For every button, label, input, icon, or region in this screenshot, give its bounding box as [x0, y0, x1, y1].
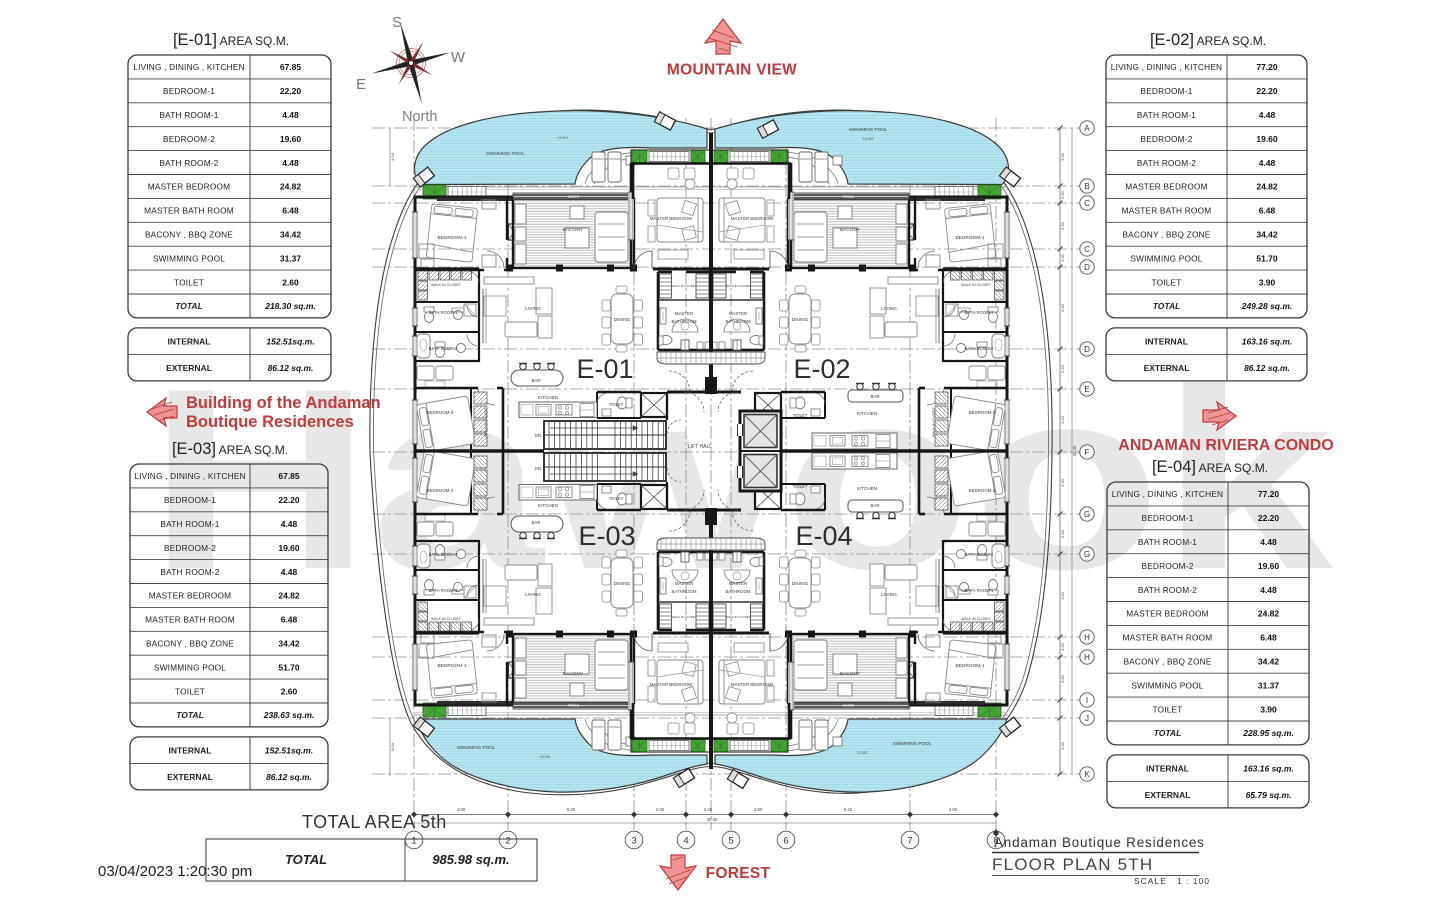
svg-text:BEDROOM-2: BEDROOM-2	[1141, 561, 1193, 571]
svg-text:4.48: 4.48	[281, 519, 298, 529]
svg-text:3.30: 3.30	[1060, 221, 1065, 230]
svg-text:E-03: E-03	[578, 521, 635, 551]
svg-text:985.98 sq.m.: 985.98 sq.m.	[432, 852, 509, 867]
svg-text:ANDAMAN RIVIERA CONDO: ANDAMAN RIVIERA CONDO	[1118, 437, 1333, 454]
svg-text:TOTAL AREA 5th: TOTAL AREA 5th	[302, 812, 447, 832]
svg-text:INTERNAL: INTERNAL	[168, 336, 211, 346]
svg-text:BATH ROOM-1: BATH ROOM-1	[1137, 110, 1196, 120]
svg-text:34.42: 34.42	[1258, 656, 1280, 666]
svg-text:E: E	[1084, 385, 1089, 394]
svg-text:[E-03] AREA SQ.M.: [E-03] AREA SQ.M.	[172, 440, 288, 458]
svg-text:LIVING , DINING , KITCHEN: LIVING , DINING , KITCHEN	[134, 471, 246, 481]
svg-text:163.16 sq.m.: 163.16 sq.m.	[1242, 336, 1293, 346]
svg-text:MASTER BEDROOM: MASTER BEDROOM	[148, 182, 231, 192]
svg-text:D: D	[1084, 263, 1090, 272]
svg-text:4: 4	[683, 835, 688, 846]
svg-text:TOILET: TOILET	[1151, 277, 1181, 287]
svg-text:2.80: 2.80	[754, 807, 763, 812]
svg-text:BEDROOM-1: BEDROOM-1	[1140, 86, 1192, 96]
svg-text:1.00: 1.00	[1060, 253, 1065, 262]
svg-text:4.80: 4.80	[949, 807, 958, 812]
svg-text:C: C	[1084, 199, 1090, 208]
svg-text:BACONY , BBQ ZONE: BACONY , BBQ ZONE	[1122, 229, 1210, 239]
svg-text:24.82: 24.82	[278, 591, 300, 601]
svg-text:6.40: 6.40	[1060, 303, 1065, 312]
svg-text:86.12 sq.m.: 86.12 sq.m.	[266, 772, 312, 782]
svg-text:30.40: 30.40	[1072, 445, 1077, 456]
svg-text:MOUNTAIN VIEW: MOUNTAIN VIEW	[667, 62, 797, 79]
svg-text:DN: DN	[535, 433, 541, 438]
svg-text:30.40: 30.40	[707, 817, 718, 822]
svg-text:J: J	[1085, 714, 1089, 723]
svg-text:WALK IN CLOSET: WALK IN CLOSET	[431, 283, 462, 287]
svg-text:D: D	[1084, 345, 1090, 354]
svg-text:31.37: 31.37	[280, 253, 302, 263]
svg-text:BEDROOM-1: BEDROOM-1	[955, 235, 984, 241]
svg-text:FLOOR PLAN 5TH: FLOOR PLAN 5TH	[992, 855, 1153, 874]
svg-text:34.42: 34.42	[278, 638, 300, 648]
svg-text:A: A	[1084, 124, 1090, 133]
svg-text:SCALE 1 : 100: SCALE 1 : 100	[1134, 876, 1210, 886]
svg-text:[E-04] AREA SQ.M.: [E-04] AREA SQ.M.	[1152, 458, 1268, 476]
svg-text:C: C	[1084, 245, 1090, 254]
svg-text:I: I	[1086, 696, 1088, 705]
svg-text:0.90: 0.90	[1060, 190, 1065, 199]
svg-text:BATH ROOM-2: BATH ROOM-2	[159, 158, 218, 168]
svg-text:WALK IN CLOSET: WALK IN CLOSET	[671, 615, 696, 619]
svg-text:MASTER BEDROOM: MASTER BEDROOM	[149, 591, 232, 601]
svg-text:BACONY: BACONY	[840, 671, 861, 677]
svg-text:15.201: 15.201	[558, 136, 568, 140]
svg-text:[E-01] AREA SQ.M.: [E-01] AREA SQ.M.	[173, 31, 289, 49]
svg-text:BATH ROOM-2: BATH ROOM-2	[429, 552, 458, 557]
svg-text:WALK IN CLOSET: WALK IN CLOSET	[961, 617, 992, 621]
svg-text:BEDROOM-1: BEDROOM-1	[164, 495, 216, 505]
svg-text:3.20: 3.20	[1060, 415, 1065, 424]
svg-text:4.04: 4.04	[390, 152, 395, 161]
svg-text:BACONY: BACONY	[563, 671, 584, 677]
svg-text:E-04: E-04	[795, 521, 852, 551]
svg-text:SWIMMING POOL: SWIMMING POOL	[849, 127, 888, 132]
svg-text:WALK IN CLOSET: WALK IN CLOSET	[725, 615, 750, 619]
svg-text:4.48: 4.48	[282, 158, 299, 168]
svg-text:BEDROOM-2: BEDROOM-2	[969, 488, 996, 493]
svg-text:19.60: 19.60	[1256, 134, 1278, 144]
svg-text:34.42: 34.42	[280, 229, 302, 239]
svg-text:SWIMMING POOL: SWIMMING POOL	[154, 662, 226, 672]
svg-text:65.79 sq.m.: 65.79 sq.m.	[1246, 790, 1292, 800]
svg-text:15.216: 15.216	[540, 755, 550, 759]
svg-text:1: 1	[411, 835, 416, 846]
svg-text:BATH ROOM-1: BATH ROOM-1	[429, 310, 458, 315]
svg-text:W: W	[451, 49, 466, 66]
svg-text:3.00: 3.00	[1060, 741, 1065, 750]
svg-text:2.90: 2.90	[656, 807, 665, 812]
svg-text:DINING: DINING	[792, 581, 809, 587]
svg-text:E-01: E-01	[576, 354, 633, 384]
svg-text:3.30: 3.30	[1060, 642, 1065, 651]
svg-text:BATH ROOM-1: BATH ROOM-1	[1138, 537, 1197, 547]
svg-text:24.82: 24.82	[1256, 182, 1278, 192]
svg-text:LIVING: LIVING	[881, 306, 897, 312]
svg-text:North: North	[402, 109, 437, 125]
svg-text:MASTER BEDROOM: MASTER BEDROOM	[731, 216, 774, 221]
svg-text:BEDROOM-2: BEDROOM-2	[1140, 134, 1192, 144]
svg-text:SWIMMING POOL: SWIMMING POOL	[1131, 680, 1203, 690]
svg-text:6.48: 6.48	[282, 206, 299, 216]
svg-text:BEDROOM-2: BEDROOM-2	[163, 134, 215, 144]
svg-text:6.48: 6.48	[1260, 633, 1277, 643]
svg-text:15.185: 15.185	[863, 137, 873, 141]
svg-text:EXTERNAL: EXTERNAL	[1144, 363, 1190, 373]
svg-text:WALK IN CLOSET: WALK IN CLOSET	[431, 617, 462, 621]
svg-text:1.00: 1.00	[1060, 591, 1065, 600]
svg-text:4.48: 4.48	[1259, 158, 1276, 168]
svg-text:BAR: BAR	[870, 394, 879, 399]
svg-text:163.16 sq.m.: 163.16 sq.m.	[1243, 763, 1294, 773]
svg-text:KITCHEN: KITCHEN	[538, 395, 558, 400]
svg-text:24.82: 24.82	[280, 182, 302, 192]
svg-text:INTERNAL: INTERNAL	[1145, 336, 1188, 346]
svg-text:15.183: 15.183	[857, 751, 867, 755]
svg-text:BATHROOM: BATHROOM	[671, 319, 696, 324]
svg-text:SWIMMING POOL: SWIMMING POOL	[153, 253, 225, 263]
svg-text:TOTAL: TOTAL	[175, 301, 203, 311]
svg-text:Boutique Residences: Boutique Residences	[186, 413, 354, 431]
svg-text:TOILET: TOILET	[1152, 704, 1182, 714]
svg-text:[E-02] AREA SQ.M.: [E-02] AREA SQ.M.	[1150, 31, 1266, 49]
svg-text:34.42: 34.42	[1256, 229, 1278, 239]
svg-text:6.40: 6.40	[1060, 529, 1065, 538]
svg-text:6: 6	[783, 835, 788, 846]
svg-text:E-02: E-02	[793, 354, 850, 384]
svg-text:G: G	[1084, 510, 1090, 519]
svg-text:19.60: 19.60	[280, 134, 302, 144]
svg-text:MASTER: MASTER	[729, 581, 747, 586]
svg-text:WALK IN CLOSET: WALK IN CLOSET	[961, 283, 992, 287]
svg-text:2.20: 2.20	[1060, 364, 1065, 373]
svg-text:DINING: DINING	[614, 317, 631, 323]
svg-text:6.40: 6.40	[567, 807, 576, 812]
svg-text:86.12 sq.m.: 86.12 sq.m.	[1244, 363, 1290, 373]
svg-text:BATHROOM: BATHROOM	[725, 319, 750, 324]
svg-text:BEDROOM-1: BEDROOM-1	[1141, 513, 1193, 523]
svg-text:INTERNAL: INTERNAL	[169, 745, 212, 755]
svg-text:3.90: 3.90	[1259, 277, 1276, 287]
svg-text:BEDROOM-2: BEDROOM-2	[427, 410, 454, 415]
svg-text:SWIMMING POOL: SWIMMING POOL	[457, 745, 496, 750]
svg-text:BATH ROOM-1: BATH ROOM-1	[160, 519, 219, 529]
svg-text:TOTAL: TOTAL	[1154, 728, 1182, 738]
svg-text:KITCHEN: KITCHEN	[857, 411, 877, 416]
svg-text:BATH ROOM-2: BATH ROOM-2	[429, 346, 458, 351]
svg-text:LIVING: LIVING	[881, 592, 897, 598]
svg-text:22.20: 22.20	[1258, 513, 1280, 523]
svg-text:WALK IN CLOSET: WALK IN CLOSET	[671, 284, 696, 288]
svg-text:7: 7	[907, 835, 912, 846]
svg-text:WALK IN CLOSET: WALK IN CLOSET	[484, 406, 488, 437]
svg-text:TOTAL: TOTAL	[1153, 301, 1181, 311]
svg-text:3: 3	[631, 835, 636, 846]
svg-text:MASTER: MASTER	[675, 311, 693, 316]
svg-text:KITCHEN: KITCHEN	[538, 503, 558, 508]
svg-text:EXTERNAL: EXTERNAL	[167, 772, 213, 782]
svg-text:MASTER BEDROOM: MASTER BEDROOM	[1126, 609, 1209, 619]
svg-text:6.40: 6.40	[844, 807, 853, 812]
svg-text:BAR: BAR	[531, 520, 540, 525]
svg-text:KITCHEN: KITCHEN	[857, 486, 877, 491]
svg-text:BAR: BAR	[870, 503, 879, 508]
svg-text:MASTER BATH ROOM: MASTER BATH ROOM	[144, 206, 234, 216]
svg-text:LIVING , DINING , KITCHEN: LIVING , DINING , KITCHEN	[1111, 62, 1223, 72]
svg-text:SWIMMING POOL: SWIMMING POOL	[893, 741, 932, 746]
svg-text:BEDROOM-2: BEDROOM-2	[969, 410, 996, 415]
svg-text:H: H	[1084, 653, 1090, 662]
svg-text:DINING: DINING	[614, 581, 631, 587]
svg-text:WALK IN CLOSET: WALK IN CLOSET	[932, 406, 936, 437]
svg-text:BATH ROOM-2: BATH ROOM-2	[160, 567, 219, 577]
svg-text:BACONY , BBQ ZONE: BACONY , BBQ ZONE	[146, 638, 234, 648]
svg-text:TOILET: TOILET	[175, 686, 205, 696]
svg-text:E: E	[356, 76, 366, 93]
svg-text:67.85: 67.85	[280, 62, 302, 72]
svg-text:238.63 sq.m.: 238.63 sq.m.	[263, 710, 315, 720]
svg-text:F: F	[1085, 448, 1090, 457]
svg-text:BATH ROOM-2: BATH ROOM-2	[965, 552, 994, 557]
svg-text:MASTER BATH ROOM: MASTER BATH ROOM	[145, 615, 235, 625]
svg-text:SWIMMING POOL: SWIMMING POOL	[1130, 253, 1202, 263]
svg-text:228.95 sq.m.: 228.95 sq.m.	[1242, 728, 1294, 738]
svg-text:5: 5	[728, 835, 733, 846]
svg-text:4.48: 4.48	[1259, 110, 1276, 120]
svg-text:TOILET: TOILET	[609, 496, 624, 501]
svg-text:Andaman Boutique Residences: Andaman Boutique Residences	[994, 835, 1205, 850]
svg-text:BATH ROOM-1: BATH ROOM-1	[965, 310, 994, 315]
svg-text:LIVING , DINING , KITCHEN: LIVING , DINING , KITCHEN	[133, 62, 245, 72]
svg-text:2.60: 2.60	[282, 277, 299, 287]
svg-text:22.20: 22.20	[280, 86, 302, 96]
svg-text:4.48: 4.48	[1260, 537, 1277, 547]
svg-text:SWIMMING POOL: SWIMMING POOL	[486, 151, 525, 156]
svg-text:152.51sq.m.: 152.51sq.m.	[266, 336, 314, 346]
svg-text:03/04/2023 1:20:30 pm: 03/04/2023 1:20:30 pm	[98, 863, 252, 880]
svg-text:BEDROOM-1: BEDROOM-1	[955, 663, 984, 669]
svg-text:MASTER BEDROOM: MASTER BEDROOM	[731, 682, 774, 687]
svg-text:MASTER BEDROOM: MASTER BEDROOM	[650, 216, 693, 221]
svg-text:3.90: 3.90	[1260, 704, 1277, 714]
svg-text:24.82: 24.82	[1258, 609, 1280, 619]
svg-text:WATER: WATER	[568, 195, 580, 199]
svg-text:BEDROOM-1: BEDROOM-1	[163, 86, 215, 96]
svg-text:BEDROOM-1: BEDROOM-1	[437, 235, 466, 241]
svg-text:B: B	[1084, 182, 1089, 191]
svg-text:BATH ROOM-2: BATH ROOM-2	[1138, 585, 1197, 595]
svg-text:2: 2	[505, 835, 510, 846]
svg-text:BATH ROOM-1: BATH ROOM-1	[965, 588, 994, 593]
svg-text:FOREST: FOREST	[706, 865, 771, 882]
svg-text:2.40: 2.40	[704, 807, 713, 812]
svg-text:MASTER: MASTER	[675, 581, 693, 586]
svg-text:G: G	[1084, 550, 1090, 559]
svg-text:0.90: 0.90	[1060, 674, 1065, 683]
svg-text:TOILET: TOILET	[793, 413, 808, 418]
svg-text:Building of the Andaman: Building of the Andaman	[186, 394, 381, 412]
svg-text:BATH ROOM-2: BATH ROOM-2	[965, 346, 994, 351]
svg-text:TOTAL: TOTAL	[176, 710, 204, 720]
svg-text:86.12 sq.m.: 86.12 sq.m.	[268, 363, 314, 373]
svg-text:BATHROOM: BATHROOM	[671, 589, 696, 594]
svg-text:MASTER BEDROOM: MASTER BEDROOM	[650, 682, 693, 687]
svg-text:TOTAL: TOTAL	[285, 852, 327, 867]
svg-text:BACONY: BACONY	[563, 227, 584, 233]
svg-text:4.04: 4.04	[390, 742, 395, 751]
svg-text:DINING: DINING	[792, 317, 809, 323]
svg-text:K: K	[1084, 770, 1090, 779]
svg-text:BATHROOM: BATHROOM	[725, 589, 750, 594]
svg-text:BACONY: BACONY	[840, 227, 861, 233]
svg-text:BEDROOM-2: BEDROOM-2	[164, 543, 216, 553]
svg-text:19.60: 19.60	[278, 543, 300, 553]
svg-text:77.20: 77.20	[1258, 489, 1280, 499]
svg-text:218.30 sq.m.: 218.30 sq.m.	[264, 301, 316, 311]
svg-text:3.20: 3.20	[1060, 478, 1065, 487]
svg-text:31.37: 31.37	[1258, 680, 1280, 690]
svg-text:LIVING: LIVING	[525, 306, 541, 312]
svg-text:EXTERNAL: EXTERNAL	[1145, 790, 1191, 800]
svg-text:51.70: 51.70	[1256, 253, 1278, 263]
svg-text:BEDROOM-2: BEDROOM-2	[427, 488, 454, 493]
svg-text:77.20: 77.20	[1256, 62, 1278, 72]
svg-text:22.20: 22.20	[278, 495, 300, 505]
svg-text:4.48: 4.48	[281, 567, 298, 577]
svg-text:WALK IN CLOSET: WALK IN CLOSET	[725, 284, 750, 288]
svg-text:MASTER BEDROOM: MASTER BEDROOM	[1125, 182, 1208, 192]
svg-text:2.60: 2.60	[281, 686, 298, 696]
svg-text:MASTER: MASTER	[729, 311, 747, 316]
svg-text:BACONY , BBQ ZONE: BACONY , BBQ ZONE	[1123, 656, 1211, 666]
svg-text:6.48: 6.48	[281, 615, 298, 625]
svg-text:H: H	[1084, 633, 1090, 642]
svg-text:EXTERNAL: EXTERNAL	[166, 363, 212, 373]
svg-text:152.51sq.m.: 152.51sq.m.	[265, 745, 313, 755]
svg-text:BEDROOM-1: BEDROOM-1	[437, 663, 466, 669]
svg-text:51.70: 51.70	[278, 662, 300, 672]
svg-text:TOILET: TOILET	[609, 402, 624, 407]
svg-text:BATH ROOM-1: BATH ROOM-1	[159, 110, 218, 120]
svg-text:22.20: 22.20	[1256, 86, 1278, 96]
svg-text:S: S	[392, 14, 402, 31]
svg-text:19.60: 19.60	[1258, 561, 1280, 571]
svg-text:MASTER BATH ROOM: MASTER BATH ROOM	[1123, 633, 1213, 643]
svg-text:DN: DN	[535, 466, 541, 471]
svg-text:67.85: 67.85	[278, 471, 300, 481]
svg-text:LIVING , DINING , KITCHEN: LIVING , DINING , KITCHEN	[1112, 489, 1224, 499]
svg-text:6.48: 6.48	[1259, 206, 1276, 216]
svg-text:INTERNAL: INTERNAL	[1146, 763, 1189, 773]
svg-text:TOILET: TOILET	[793, 484, 808, 489]
svg-text:BATH ROOM-2: BATH ROOM-2	[1137, 158, 1196, 168]
svg-text:4.80: 4.80	[457, 807, 466, 812]
svg-text:4.48: 4.48	[282, 110, 299, 120]
svg-text:TOILET: TOILET	[174, 277, 204, 287]
svg-text:LIFT HALL: LIFT HALL	[688, 444, 712, 450]
svg-text:BAR: BAR	[531, 378, 540, 383]
svg-text:3.00: 3.00	[1060, 152, 1065, 161]
svg-text:249.28 sq.m.: 249.28 sq.m.	[1241, 301, 1293, 311]
svg-text:4.48: 4.48	[1260, 585, 1277, 595]
svg-text:BATH ROOM-1: BATH ROOM-1	[429, 588, 458, 593]
svg-text:MASTER BATH ROOM: MASTER BATH ROOM	[1122, 206, 1212, 216]
svg-text:LIVING: LIVING	[525, 592, 541, 598]
svg-text:BACONY , BBQ ZONE: BACONY , BBQ ZONE	[145, 229, 233, 239]
